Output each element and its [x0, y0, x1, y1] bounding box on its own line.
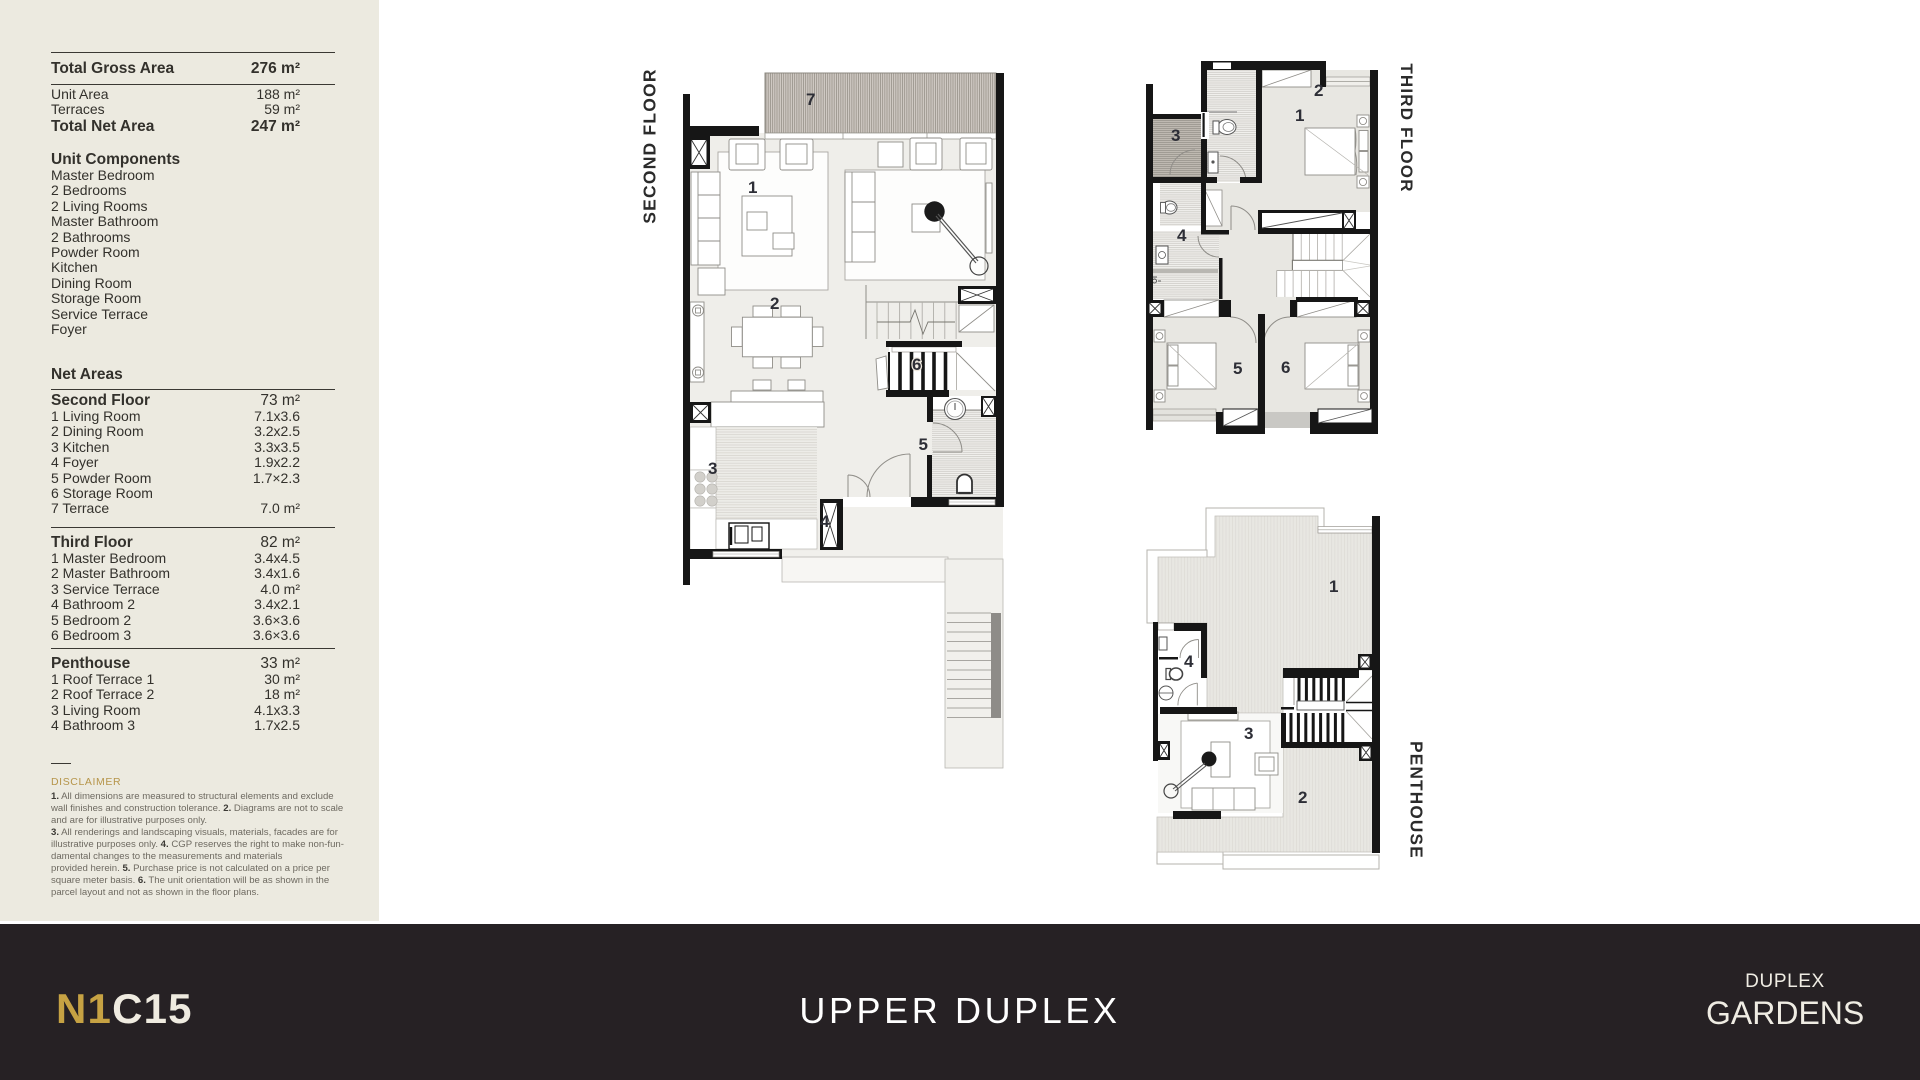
svg-text:1: 1 — [1295, 106, 1304, 125]
svg-text:5: 5 — [919, 435, 928, 454]
svg-text:2: 2 — [770, 294, 779, 313]
svg-text:2: 2 — [1314, 81, 1323, 100]
svg-text:2: 2 — [1298, 788, 1307, 807]
svg-text:5: 5 — [1233, 359, 1242, 378]
svg-text:1: 1 — [748, 178, 757, 197]
svg-text:6: 6 — [1281, 358, 1290, 377]
svg-text:7: 7 — [806, 90, 815, 109]
svg-text:4: 4 — [820, 512, 830, 531]
svg-text:3: 3 — [1244, 724, 1253, 743]
svg-text:4: 4 — [1184, 652, 1194, 671]
svg-text:4: 4 — [1177, 226, 1187, 245]
svg-text:1: 1 — [1329, 577, 1338, 596]
svg-text:3: 3 — [1171, 126, 1180, 145]
svg-text:6: 6 — [912, 355, 921, 374]
svg-text:3: 3 — [708, 459, 717, 478]
